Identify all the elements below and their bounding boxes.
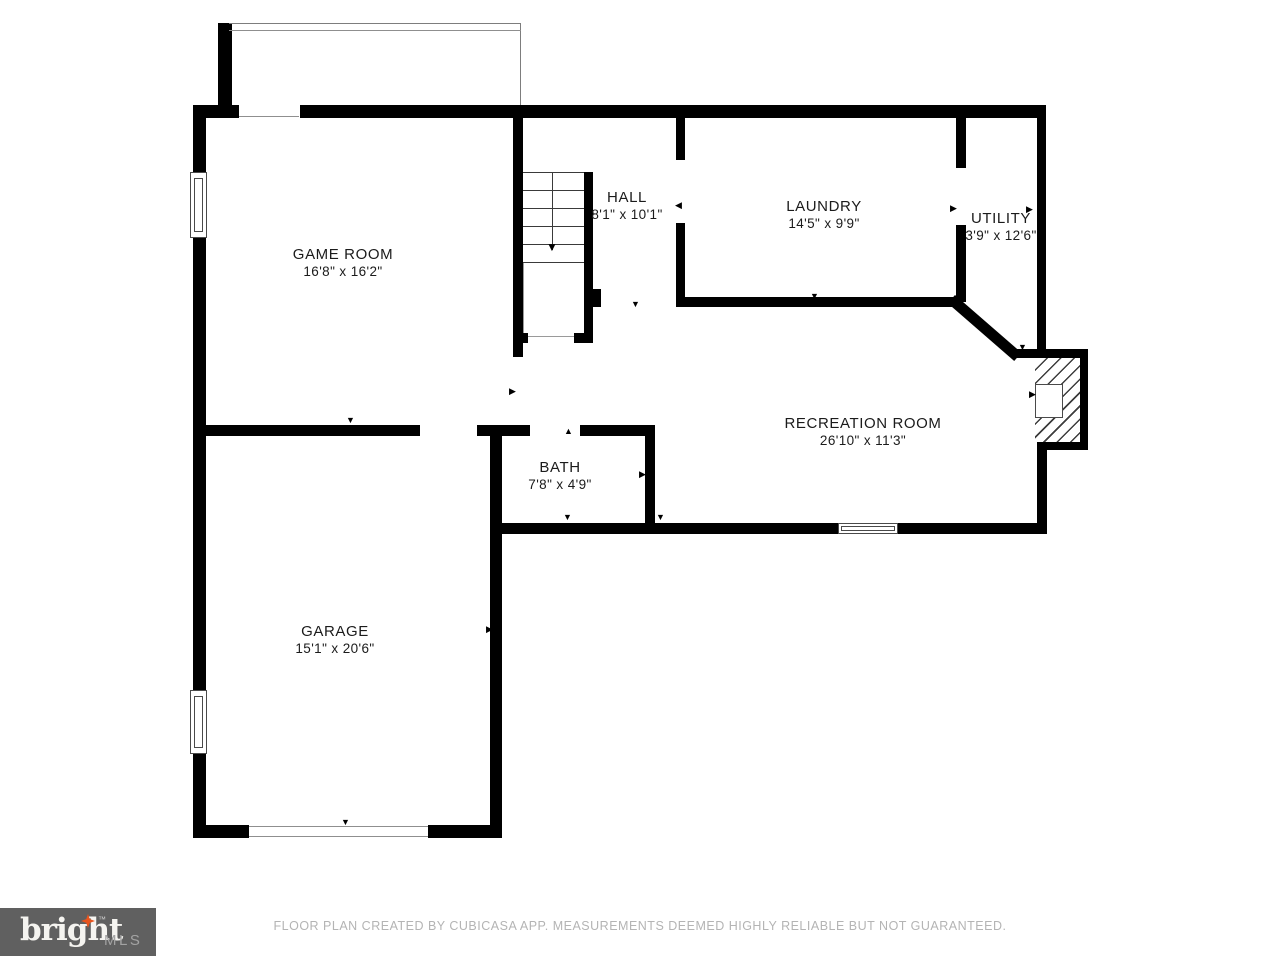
room-label-bath: BATH 7'8" x 4'9" xyxy=(528,459,591,493)
measure-marker: ▲ xyxy=(347,110,356,119)
measure-marker: ▲ xyxy=(1018,110,1027,119)
laundry-left-wall xyxy=(676,223,685,307)
measure-marker: ▶ xyxy=(639,470,646,479)
bath-top-wall xyxy=(580,425,655,436)
measure-marker: ▲ xyxy=(338,429,347,438)
measure-marker: ▼ xyxy=(341,818,350,827)
fireplace-right-wall xyxy=(1080,349,1088,450)
deck-top-line xyxy=(229,30,521,31)
deck-door-line xyxy=(239,116,299,117)
fireplace-bottom-wall xyxy=(1037,442,1088,450)
wall-cap xyxy=(574,333,585,343)
window xyxy=(190,172,207,238)
measure-marker: ▲ xyxy=(625,110,634,119)
diagonal-wall xyxy=(948,295,1022,361)
left-wall xyxy=(193,105,206,172)
stair-enclosure-line xyxy=(523,263,524,337)
window xyxy=(838,523,898,534)
room-label-laundry: LAUNDRY 14'5" x 9'9" xyxy=(786,198,862,232)
measure-marker: ◀ xyxy=(675,201,682,210)
wall-cap xyxy=(517,333,528,343)
room-label-utility: UTILITY 3'9" x 12'6" xyxy=(965,210,1036,244)
measure-marker: ◀ xyxy=(491,470,498,479)
garage-bottom-wall xyxy=(193,825,249,838)
top-wall xyxy=(300,105,1046,118)
deck-outline xyxy=(229,23,521,113)
firebox xyxy=(1035,384,1063,418)
laundry-left-wall xyxy=(676,118,685,160)
measure-marker: ▶ xyxy=(1029,390,1036,399)
measure-marker: ▼ xyxy=(563,513,572,522)
game-garage-wall xyxy=(193,425,420,436)
room-label-garage: GARAGE 15'1" x 20'6" xyxy=(295,623,374,657)
measure-marker: ▼ xyxy=(346,416,355,425)
measure-marker: ▼ xyxy=(656,513,665,522)
recreation-bottom-wall xyxy=(898,523,1047,534)
disclaimer-text: FLOOR PLAN CREATED BY CUBICASA APP. MEAS… xyxy=(0,919,1280,933)
garage-door-line xyxy=(249,826,428,827)
measure-marker: ▲ xyxy=(810,110,819,119)
bath-right-wall xyxy=(645,425,655,523)
floor-plan: ▼ ▲ ▲ ▲ ▲ ◀ ◀ ▶ ▼ ▼ ▲ ▲ ◀ ▶ ▼ ▼ ▼ ◀ ▶ ▶ … xyxy=(0,0,1280,960)
room-label-recreation-room: RECREATION ROOM 26'10" x 11'3" xyxy=(784,415,941,449)
measure-marker: ▼ xyxy=(810,292,819,301)
room-label-game-room: GAME ROOM 16'8" x 16'2" xyxy=(293,246,393,280)
left-wall xyxy=(193,238,206,690)
recreation-bottom-wall xyxy=(490,523,838,534)
door-jamb xyxy=(587,289,601,307)
measure-marker: ▶ xyxy=(486,625,493,634)
measure-marker: ▼ xyxy=(1018,343,1027,352)
measure-marker: ◀ xyxy=(196,625,203,634)
measure-marker: ▶ xyxy=(509,387,516,396)
measure-marker: ◀ xyxy=(196,385,203,394)
garage-door-line xyxy=(249,836,428,837)
measure-marker: ▼ xyxy=(631,300,640,309)
window xyxy=(190,690,207,754)
measure-marker: ▲ xyxy=(564,427,573,436)
stairs-down-arrow-icon: ▼ xyxy=(546,241,558,253)
utility-divider-wall xyxy=(956,118,966,168)
recreation-right-wall xyxy=(1037,450,1047,533)
mls-logo-text: MLS xyxy=(104,932,142,949)
right-wall xyxy=(1037,105,1046,357)
hall-divider-wall xyxy=(513,118,523,357)
room-label-hall: HALL 8'1" x 10'1" xyxy=(591,189,662,223)
measure-marker: ▶ xyxy=(950,204,957,213)
game-garage-wall xyxy=(477,425,530,436)
staircase-center-line xyxy=(552,172,553,250)
